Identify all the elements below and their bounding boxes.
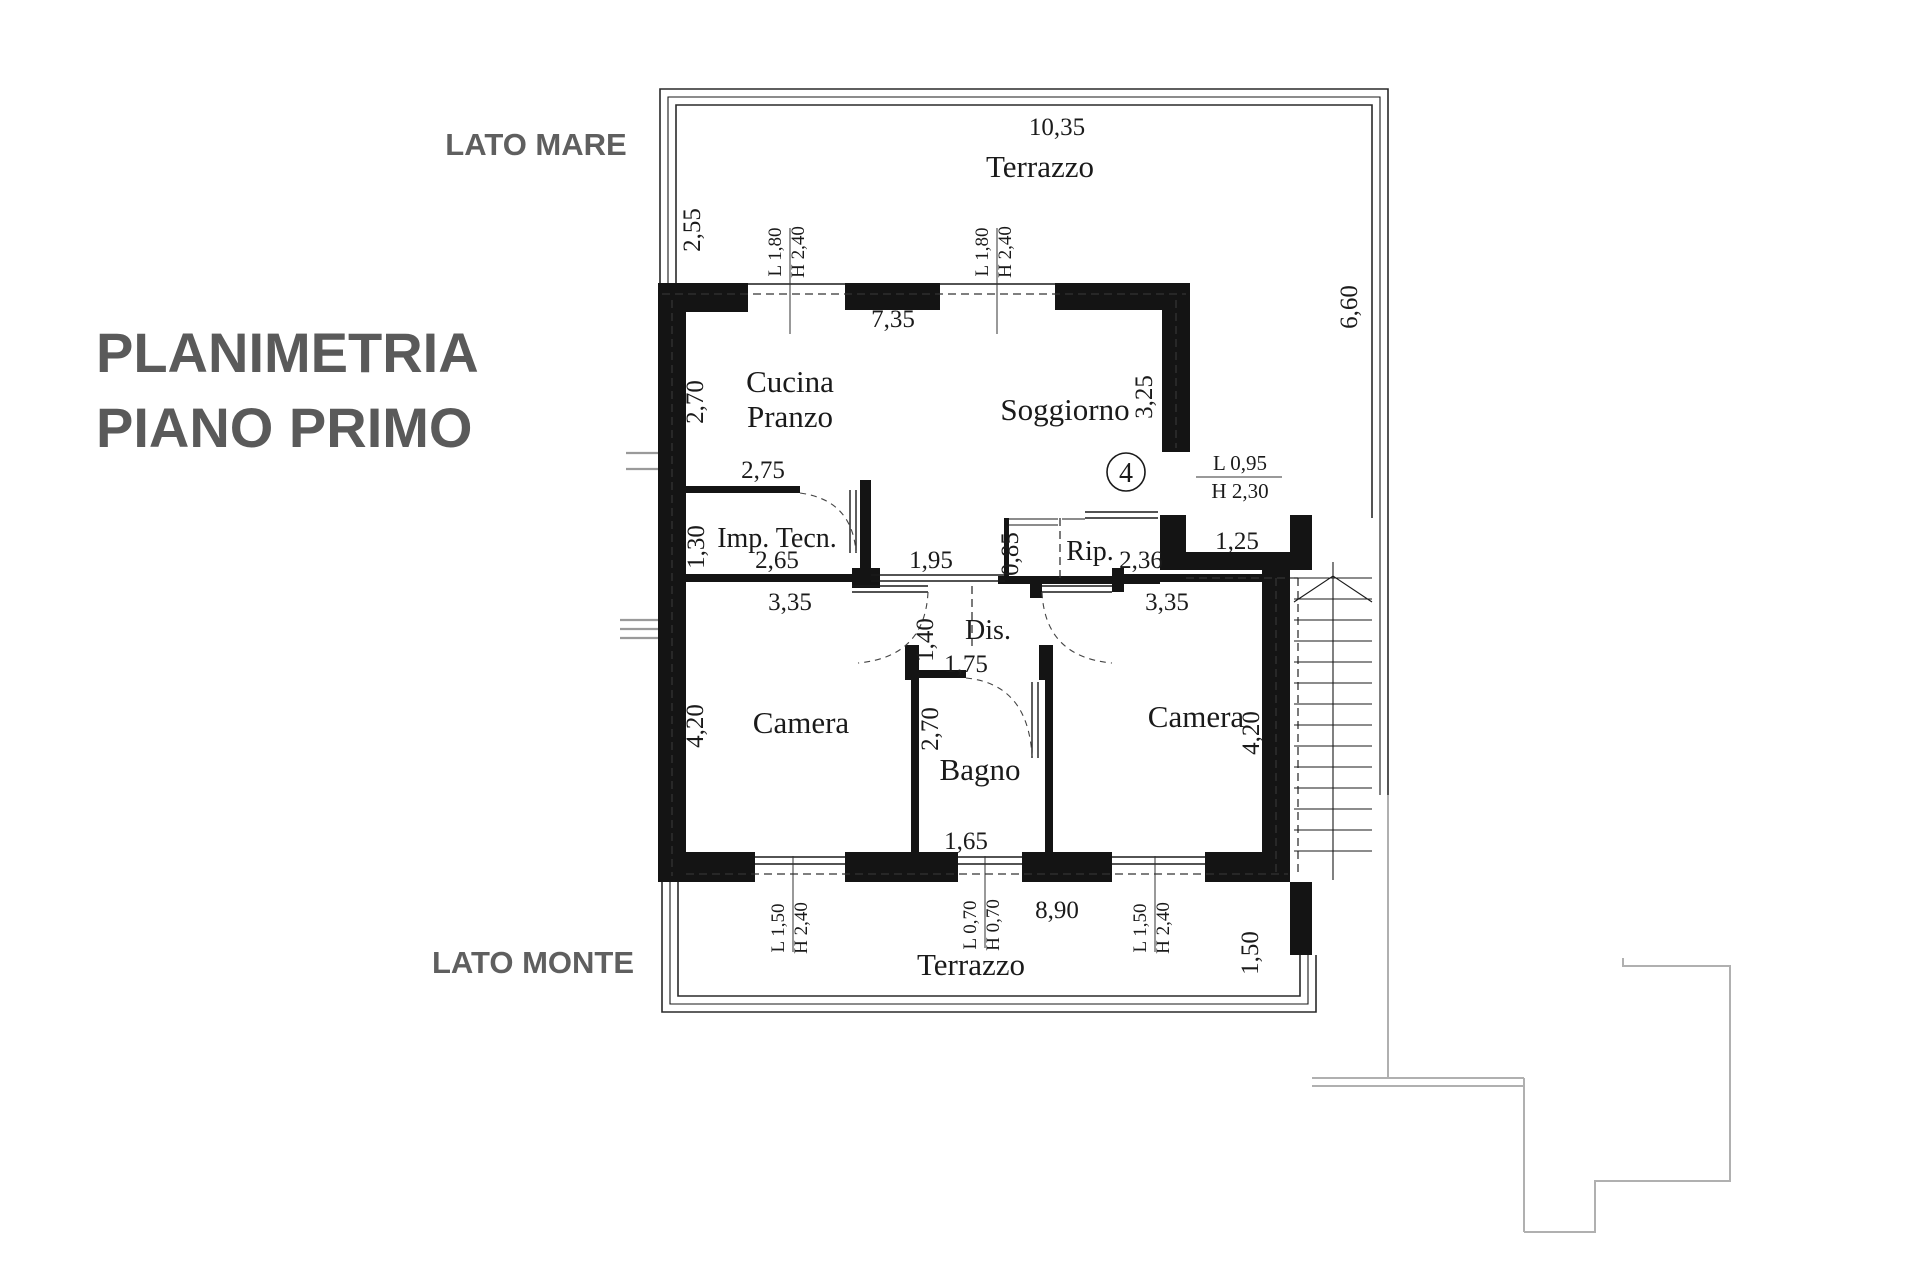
- wall-jamb-hall-left: [852, 568, 880, 588]
- orientation-label-mountain: LATO MONTE: [432, 945, 634, 980]
- dim-bath-door-span: 1,75: [944, 651, 988, 678]
- window-bottom-left-l: L 1,50: [768, 904, 789, 953]
- wall-bottom-pier3: [1022, 852, 1112, 882]
- ground-floor-outline: [1312, 795, 1730, 1232]
- wall-bath-jamb-right: [1039, 645, 1053, 680]
- door-arc-bath: [966, 678, 1032, 756]
- window-top-left-l: L 1,80: [765, 228, 786, 277]
- dim-top-wall-span: 7,35: [871, 306, 915, 333]
- dim-hall-door-width: 1,40: [912, 618, 939, 662]
- dim-terrace-right-height: 6,60: [1336, 285, 1363, 329]
- dim-tech-width-bottom: 2,65: [755, 547, 799, 574]
- room-label-hall: Dis.: [965, 615, 1011, 646]
- room-label-bedroom-right: Camera: [1148, 699, 1245, 734]
- wall-tech-bedroom: [686, 574, 852, 582]
- dim-landing-width: 1,25: [1215, 528, 1259, 555]
- dim-storage-width: 2,36: [1119, 547, 1163, 574]
- room-label-terrace-bottom: Terrazzo: [917, 947, 1025, 982]
- door-label-l: L 0,95: [1213, 451, 1267, 475]
- dim-kitchen-depth: 2,70: [682, 380, 709, 424]
- window-bottom-right-l: L 1,50: [1130, 904, 1151, 953]
- room-label-kitchen-2: Pranzo: [747, 399, 833, 434]
- room-label-kitchen-1: Cucina: [746, 364, 834, 399]
- dim-bedroom-right-width: 3,35: [1145, 589, 1189, 616]
- door-label-h: H 2,30: [1211, 479, 1268, 503]
- dim-terrace-bottom-depth: 1,50: [1237, 931, 1264, 975]
- dim-storage-depth: 0,85: [997, 532, 1024, 576]
- wall-terrace-block: [1290, 882, 1312, 955]
- window-top-left-h: H 2,40: [788, 226, 809, 278]
- window-bottom-left: [755, 857, 845, 864]
- stairs: [1294, 562, 1372, 880]
- dim-bedroom-left-width: 3,35: [768, 589, 812, 616]
- window-bottom-left-h: H 2,40: [791, 902, 812, 954]
- dim-bedroom-right-depth: 4,20: [1238, 711, 1265, 755]
- room-label-bedroom-left: Camera: [753, 705, 850, 740]
- dim-corridor-opening: 1,95: [909, 547, 953, 574]
- dim-terrace-top-depth: 2,55: [679, 208, 706, 252]
- window-bottom-center-l: L 0,70: [960, 901, 981, 950]
- page-title-line2: PIANO PRIMO: [96, 396, 472, 459]
- wall-stair-side: [1290, 515, 1312, 570]
- window-top-right-h: H 2,40: [995, 226, 1016, 278]
- room-label-terrace-top: Terrazzo: [986, 149, 1094, 184]
- window-bottom-center-h: H 0,70: [983, 899, 1004, 951]
- window-top-right-l: L 1,80: [972, 228, 993, 277]
- floor-plan-page: PLANIMETRIA PIANO PRIMO LATO MARE LATO M…: [0, 0, 1920, 1280]
- floor-plan-drawing: PLANIMETRIA PIANO PRIMO LATO MARE LATO M…: [0, 0, 1920, 1280]
- window-bottom-center: [958, 857, 1022, 864]
- wall-break-marks: [620, 453, 659, 638]
- wall-jamb-storage: [1030, 576, 1042, 598]
- room-label-storage: Rip.: [1066, 536, 1113, 567]
- dim-bedroom-left-depth: 4,20: [682, 704, 709, 748]
- wall-bottom-pier2: [845, 852, 958, 882]
- wall-landing-left: [1160, 515, 1186, 570]
- wall-kitchen-tech: [686, 486, 800, 493]
- door-number: 4: [1119, 458, 1133, 489]
- dim-living-depth: 3,25: [1131, 375, 1158, 419]
- dim-terrace-top-width: 10,35: [1029, 114, 1085, 141]
- window-bottom-right: [1112, 857, 1205, 864]
- window-bottom-right-h: H 2,40: [1153, 902, 1174, 954]
- dim-tech-depth: 1,30: [683, 525, 710, 569]
- dim-tech-width-top: 2,75: [741, 457, 785, 484]
- wall-bottom-pier4: [1205, 852, 1290, 882]
- orientation-label-sea: LATO MARE: [445, 127, 626, 162]
- dim-bath-depth: 2,70: [917, 707, 944, 751]
- page-title-line1: PLANIMETRIA: [96, 321, 479, 384]
- dim-bottom-span: 8,90: [1035, 897, 1079, 924]
- dim-bath-width: 1,65: [944, 828, 988, 855]
- wall-tech-corridor: [860, 480, 871, 580]
- room-label-bath: Bagno: [940, 752, 1021, 787]
- room-label-living: Soggiorno: [1000, 392, 1129, 427]
